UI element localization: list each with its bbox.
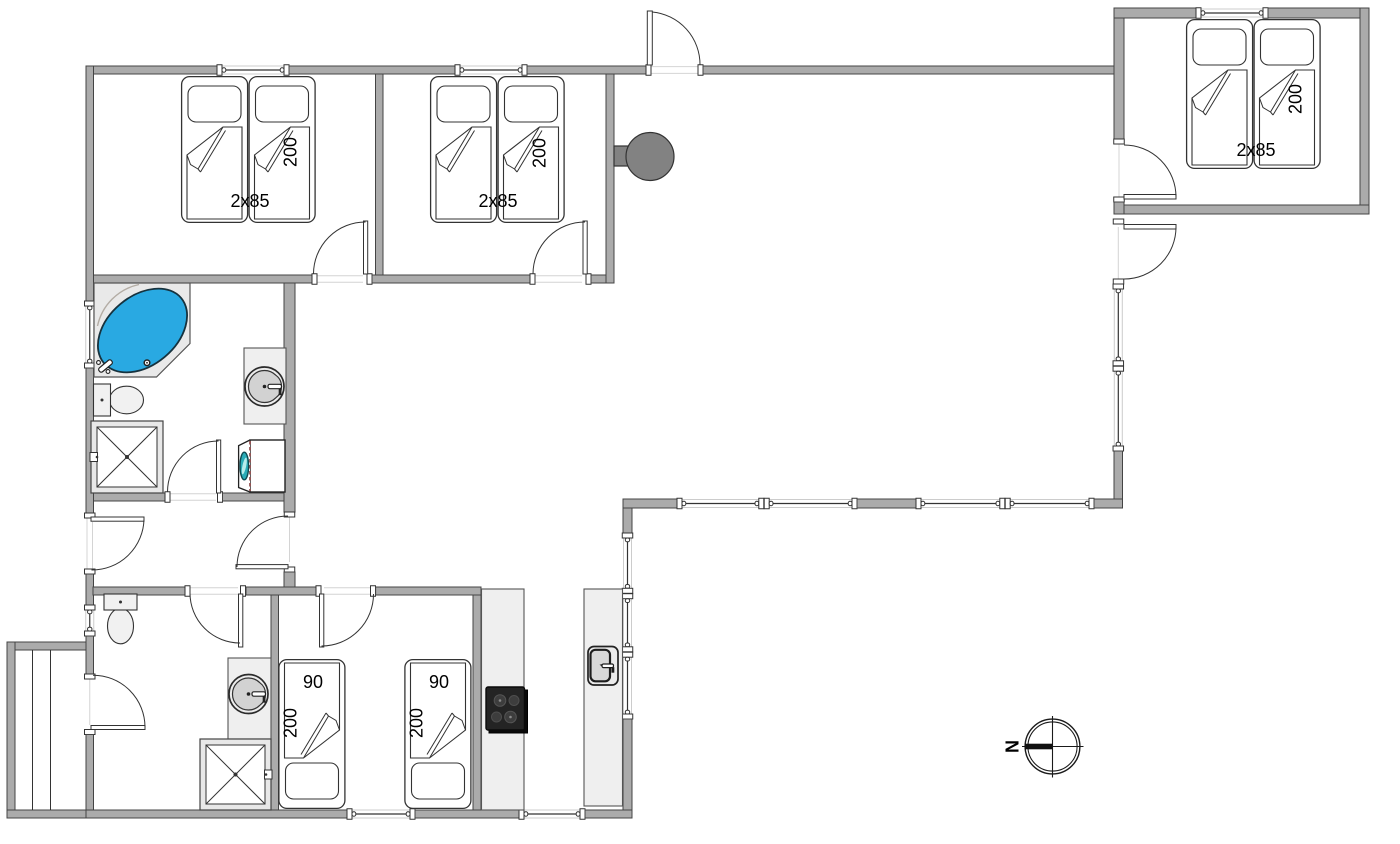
svg-text:200: 200 [281, 708, 301, 738]
svg-text:N: N [1003, 740, 1023, 753]
svg-text:90: 90 [303, 672, 323, 692]
svg-text:200: 200 [407, 708, 427, 738]
svg-text:200: 200 [530, 138, 550, 168]
svg-text:2x85: 2x85 [1236, 140, 1275, 160]
svg-text:90: 90 [429, 672, 449, 692]
svg-text:2x85: 2x85 [230, 191, 269, 211]
svg-text:2x85: 2x85 [478, 191, 517, 211]
svg-text:200: 200 [1286, 84, 1306, 114]
svg-text:200: 200 [281, 137, 301, 167]
